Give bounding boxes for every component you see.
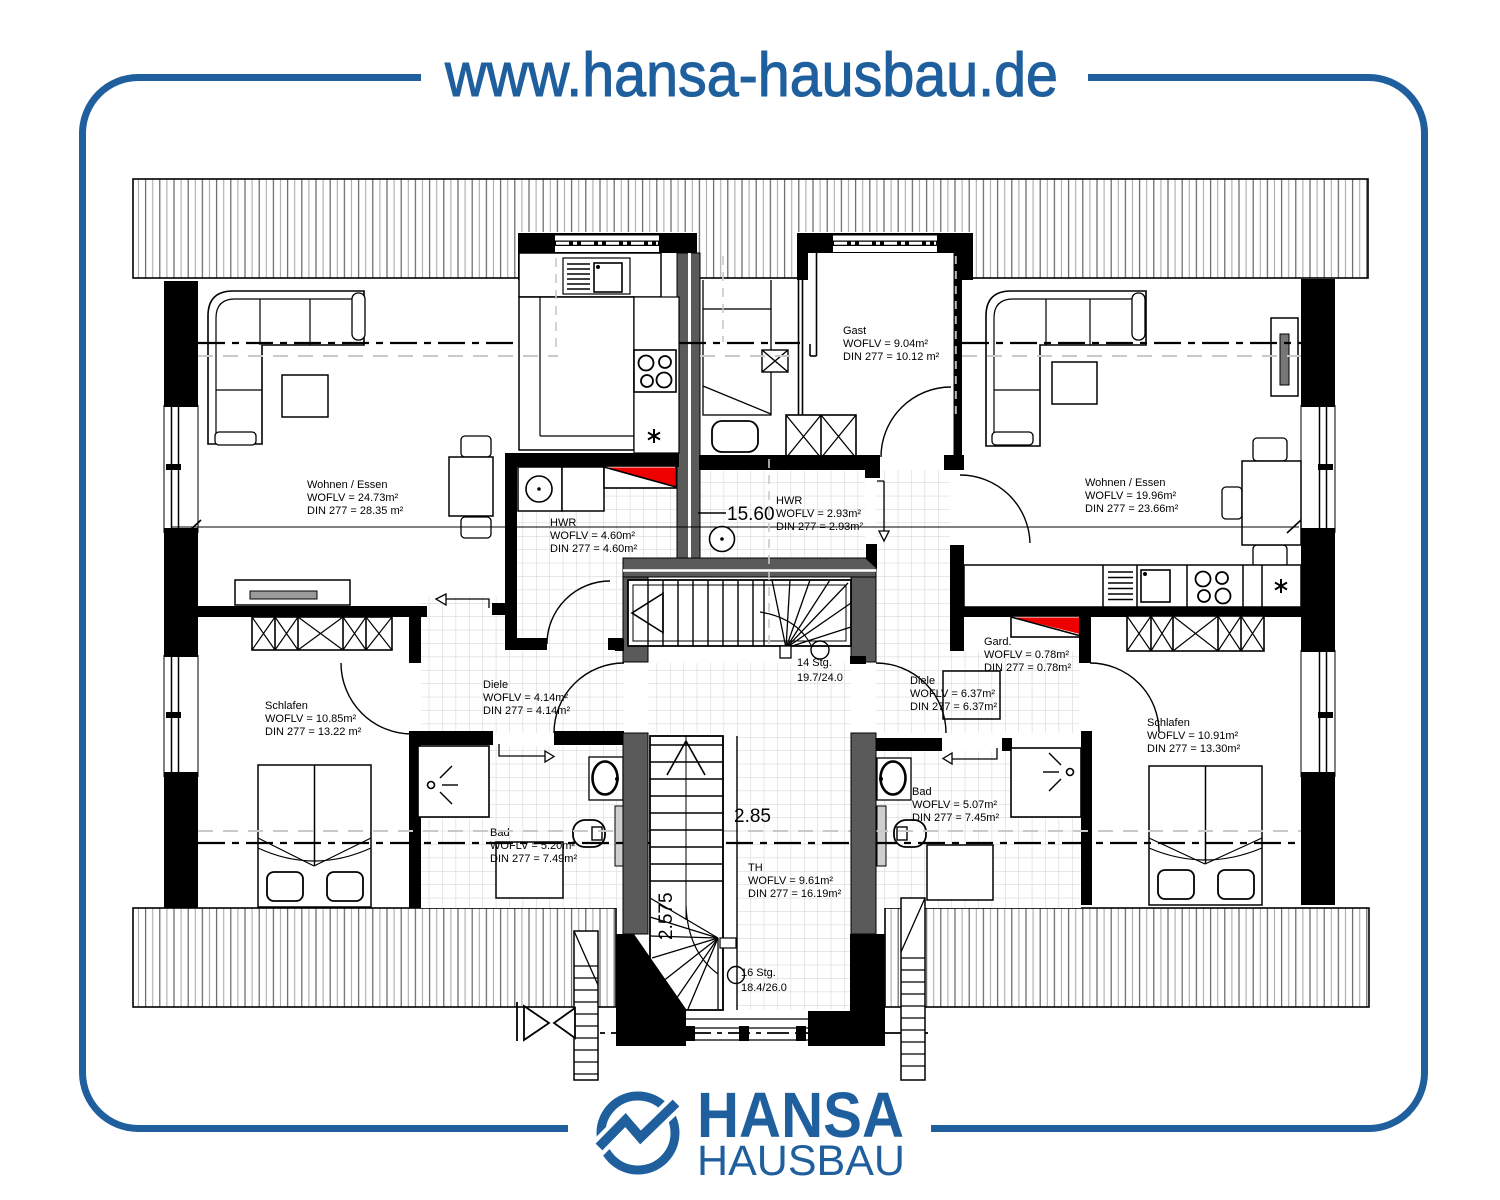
- svg-text:WOFLV = 2.93m²: WOFLV = 2.93m²: [776, 508, 861, 520]
- svg-text:18.4/26.0: 18.4/26.0: [741, 982, 787, 994]
- svg-text:2.85: 2.85: [734, 806, 771, 827]
- svg-text:DIN 277 = 7.45m²: DIN 277 = 7.45m²: [912, 812, 999, 824]
- svg-text:WOFLV = 10.91m²: WOFLV = 10.91m²: [1147, 730, 1239, 742]
- svg-text:DIN 277 = 4.60m²: DIN 277 = 4.60m²: [550, 543, 637, 555]
- svg-text:Wohnen / Essen: Wohnen / Essen: [1085, 477, 1166, 489]
- svg-text:DIN 277 = 0.78m²: DIN 277 = 0.78m²: [984, 662, 1071, 674]
- svg-text:DIN 277 = 16.19m²: DIN 277 = 16.19m²: [748, 888, 842, 900]
- svg-text:WOFLV = 4.60m²: WOFLV = 4.60m²: [550, 530, 635, 542]
- svg-text:DIN 277 = 7.49m²: DIN 277 = 7.49m²: [490, 853, 577, 865]
- svg-text:15.60: 15.60: [727, 504, 775, 525]
- svg-text:Schlafen: Schlafen: [1147, 717, 1190, 729]
- svg-text:WOFLV = 9.61m²: WOFLV = 9.61m²: [748, 875, 833, 887]
- svg-text:WOFLV = 5.20m²: WOFLV = 5.20m²: [490, 840, 575, 852]
- svg-text:WOFLV = 24.73m²: WOFLV = 24.73m²: [307, 492, 399, 504]
- svg-text:www.hansa-hausbau.de: www.hansa-hausbau.de: [444, 41, 1058, 110]
- svg-text:WOFLV = 19.96m²: WOFLV = 19.96m²: [1085, 490, 1177, 502]
- svg-text:TH: TH: [748, 862, 763, 874]
- svg-text:Bad: Bad: [912, 786, 932, 798]
- svg-text:HAUSBAU: HAUSBAU: [697, 1137, 905, 1185]
- svg-text:HWR: HWR: [776, 495, 802, 507]
- svg-text:DIN 277 = 13.22 m²: DIN 277 = 13.22 m²: [265, 726, 362, 738]
- svg-text:WOFLV = 0.78m²: WOFLV = 0.78m²: [984, 649, 1069, 661]
- svg-text:WOFLV = 4.14m²: WOFLV = 4.14m²: [483, 692, 568, 704]
- svg-text:19.7/24.0: 19.7/24.0: [797, 672, 843, 684]
- svg-text:DIN 277 = 13.30m²: DIN 277 = 13.30m²: [1147, 743, 1241, 755]
- svg-text:Schlafen: Schlafen: [265, 700, 308, 712]
- svg-text:2.575: 2.575: [656, 892, 677, 940]
- svg-text:16 Stg.: 16 Stg.: [741, 967, 776, 979]
- svg-text:Gard.: Gard.: [984, 636, 1012, 648]
- svg-text:Diele: Diele: [483, 679, 508, 691]
- svg-text:Wohnen / Essen: Wohnen / Essen: [307, 479, 388, 491]
- svg-text:WOFLV = 9.04m²: WOFLV = 9.04m²: [843, 338, 928, 350]
- svg-text:WOFLV = 10.85m²: WOFLV = 10.85m²: [265, 713, 357, 725]
- svg-text:14 Stg.: 14 Stg.: [797, 657, 832, 669]
- svg-text:Gast: Gast: [843, 325, 866, 337]
- svg-text:Bad: Bad: [490, 827, 510, 839]
- svg-text:WOFLV = 5.07m²: WOFLV = 5.07m²: [912, 799, 997, 811]
- svg-text:DIN 277 = 23.66m²: DIN 277 = 23.66m²: [1085, 503, 1179, 515]
- svg-text:WOFLV = 6.37m²: WOFLV = 6.37m²: [910, 688, 995, 700]
- svg-text:DIN 277 = 28.35 m²: DIN 277 = 28.35 m²: [307, 505, 404, 517]
- svg-text:DIN 277 = 6.37m²: DIN 277 = 6.37m²: [910, 701, 997, 713]
- svg-text:DIN 277 = 10.12 m²: DIN 277 = 10.12 m²: [843, 351, 940, 363]
